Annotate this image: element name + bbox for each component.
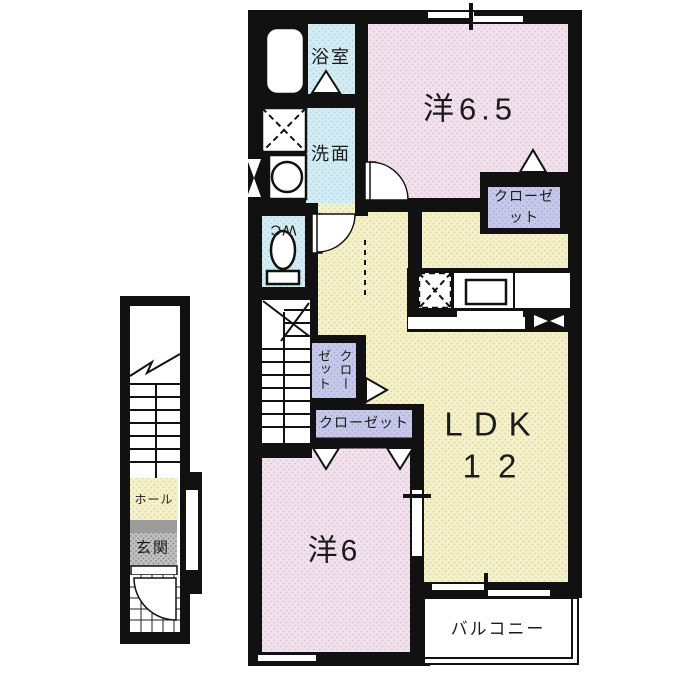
balcony-window-pane-left (432, 584, 488, 590)
label-western-6: 洋6 (308, 532, 361, 570)
side-cabinet (186, 490, 198, 570)
interior-stairs-floor (262, 300, 310, 443)
kitchen-edge-strip (408, 317, 525, 329)
kitchen-sink (466, 280, 506, 304)
label-ldk: LDK (444, 403, 541, 444)
label-hall: ホール (134, 493, 173, 508)
entrance-stair-block (120, 296, 202, 644)
floorplan-canvas: 浴室 洗面 WC 洋6.5 クローゼット クローゼット クローゼット LDK 1… (0, 0, 700, 700)
top-window-pane-right (471, 16, 523, 22)
label-closet-lower: クローゼット (319, 414, 409, 432)
label-balcony: バルコニー (451, 618, 546, 639)
top-window-tick (469, 3, 473, 30)
wall-left (248, 10, 262, 666)
label-entrance: 玄関 (136, 540, 170, 559)
kitchen (407, 268, 578, 332)
kitchen-counter-right (515, 273, 570, 308)
label-wc: WC (270, 220, 297, 239)
toilet-tank (267, 271, 299, 284)
top-window-pane-left (428, 12, 474, 18)
western6-ldk-tick (403, 494, 431, 498)
bathtub (266, 28, 304, 94)
entrance-step (130, 520, 177, 533)
label-washroom: 洗面 (311, 143, 351, 166)
washer-drum-icon (272, 162, 302, 192)
label-western-65: 洋6.5 (423, 91, 517, 130)
wall-kitchen-stub (408, 198, 422, 270)
label-closet-mid: クローゼット (313, 343, 356, 397)
label-ldk-size: 12 (463, 445, 534, 486)
label-bathroom: 浴室 (311, 46, 351, 69)
wall-stairs-bottom (248, 443, 312, 458)
wall-wc-bottom (248, 287, 310, 300)
western6-ldk-opening (412, 490, 422, 556)
western6-bottom-window (258, 655, 316, 661)
label-closet-65: クローゼット (491, 186, 557, 228)
interior-stairs (262, 300, 310, 443)
wall-top (248, 10, 582, 24)
entrance-threshold (131, 566, 177, 575)
balcony-window-pane-right (486, 590, 550, 596)
